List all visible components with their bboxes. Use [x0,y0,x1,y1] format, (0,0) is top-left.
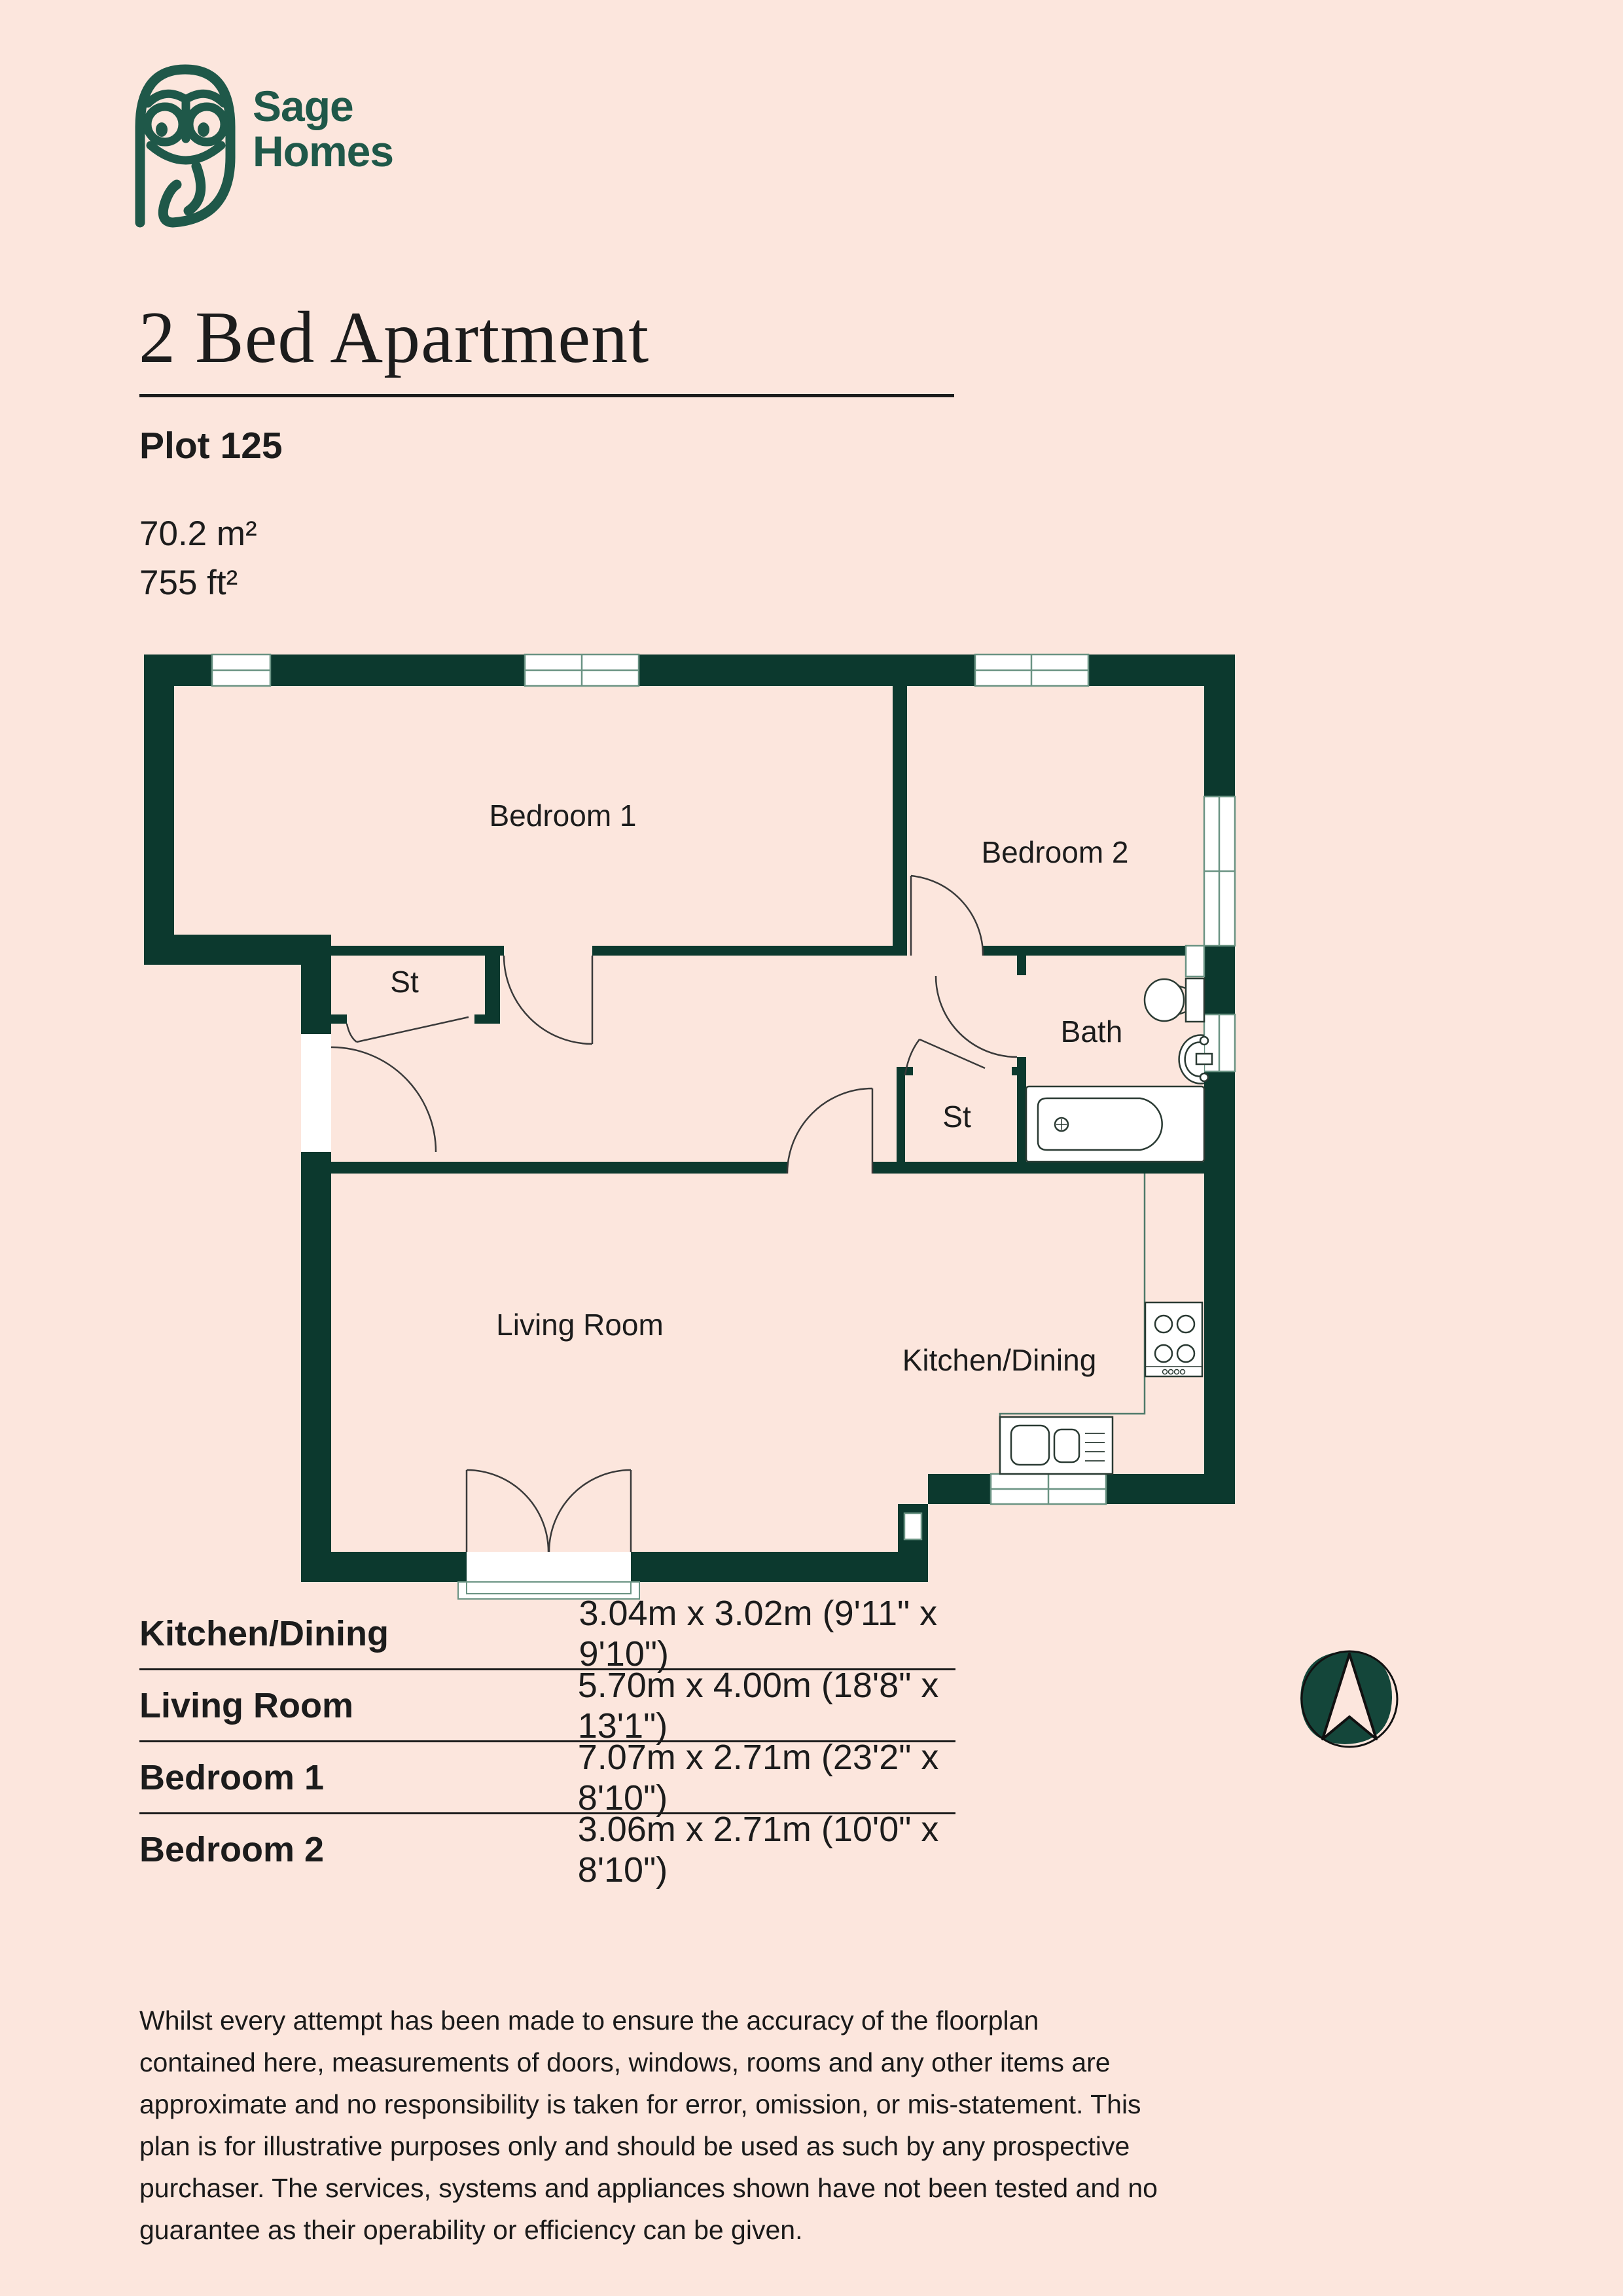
entrance-door-arc [331,1047,436,1152]
room-name: Kitchen/Dining [139,1613,579,1654]
room-name: Bedroom 2 [139,1829,578,1870]
brand-name-line1: Sage [253,84,393,129]
french-door-leaves [467,1470,631,1552]
label-kitchen-dining: Kitchen/Dining [902,1343,1097,1377]
owl-feather-inner [188,166,201,211]
page-title: 2 Bed Apartment [139,296,649,380]
french-door-arcs [467,1470,631,1552]
floorplan-drawing: Bedroom 1 Bedroom 2 Bath St St Living Ro… [118,615,1289,1623]
area-square-feet: 755 ft² [139,558,257,607]
label-storage1: St [390,965,419,999]
entrance-opening [301,1034,331,1152]
disclaimer-text: Whilst every attempt has been made to en… [139,2000,1160,2251]
owl-pupil-right [198,122,209,137]
room-name: Living Room [139,1685,578,1726]
living-room-door [787,1088,872,1174]
french-door-opening [467,1552,631,1582]
owl-pupil-left [156,122,168,137]
toilet-bowl [1145,979,1184,1021]
storage1-door [347,1017,469,1042]
table-row: Bedroom 1 7.07m x 2.71m (23'2" x 8'10") [139,1742,955,1814]
room-size: 5.70m x 4.00m (18'8" x 13'1") [578,1665,955,1746]
bedroom1-door [504,956,592,1044]
bottom-wall-vent [904,1513,921,1539]
room-size: 3.04m x 3.02m (9'11" x 9'10") [579,1593,955,1674]
toilet-cistern [1186,978,1204,1022]
room-size: 7.07m x 2.71m (23'2" x 8'10") [578,1737,955,1818]
service-duct [1186,946,1204,977]
kitchen-sink-bowl-small [1054,1429,1079,1462]
door-swings [331,876,1017,1552]
label-living-room: Living Room [496,1308,664,1342]
table-row: Bedroom 2 3.06m x 2.71m (10'0" x 8'10") [139,1814,955,1884]
north-arrow-icon [1279,1630,1417,1767]
label-bedroom2: Bedroom 2 [981,835,1128,869]
area-square-metres: 70.2 m² [139,509,257,558]
bath-door-arc [936,976,1017,1057]
brand-name-line2: Homes [253,129,393,174]
plot-number: Plot 125 [139,424,283,467]
label-storage2: St [942,1100,971,1134]
area-block: 70.2 m² 755 ft² [139,509,257,608]
owl-face-curve [151,145,221,160]
bedroom2-door [911,876,983,956]
title-underline [139,394,954,397]
label-bedroom1: Bedroom 1 [489,798,636,833]
label-bath: Bath [1061,1014,1123,1049]
dimensions-table: Kitchen/Dining 3.04m x 3.02m (9'11" x 9'… [139,1598,955,1884]
table-row: Living Room 5.70m x 4.00m (18'8" x 13'1"… [139,1670,955,1742]
hob [1145,1302,1202,1376]
kitchen-sink-bowl-large [1011,1426,1049,1465]
room-name: Bedroom 1 [139,1757,578,1798]
brand-wordmark: Sage Homes [253,84,393,173]
fixtures [1000,978,1212,1474]
room-size: 3.06m x 2.71m (10'0" x 8'10") [578,1809,955,1890]
table-row: Kitchen/Dining 3.04m x 3.02m (9'11" x 9'… [139,1598,955,1670]
